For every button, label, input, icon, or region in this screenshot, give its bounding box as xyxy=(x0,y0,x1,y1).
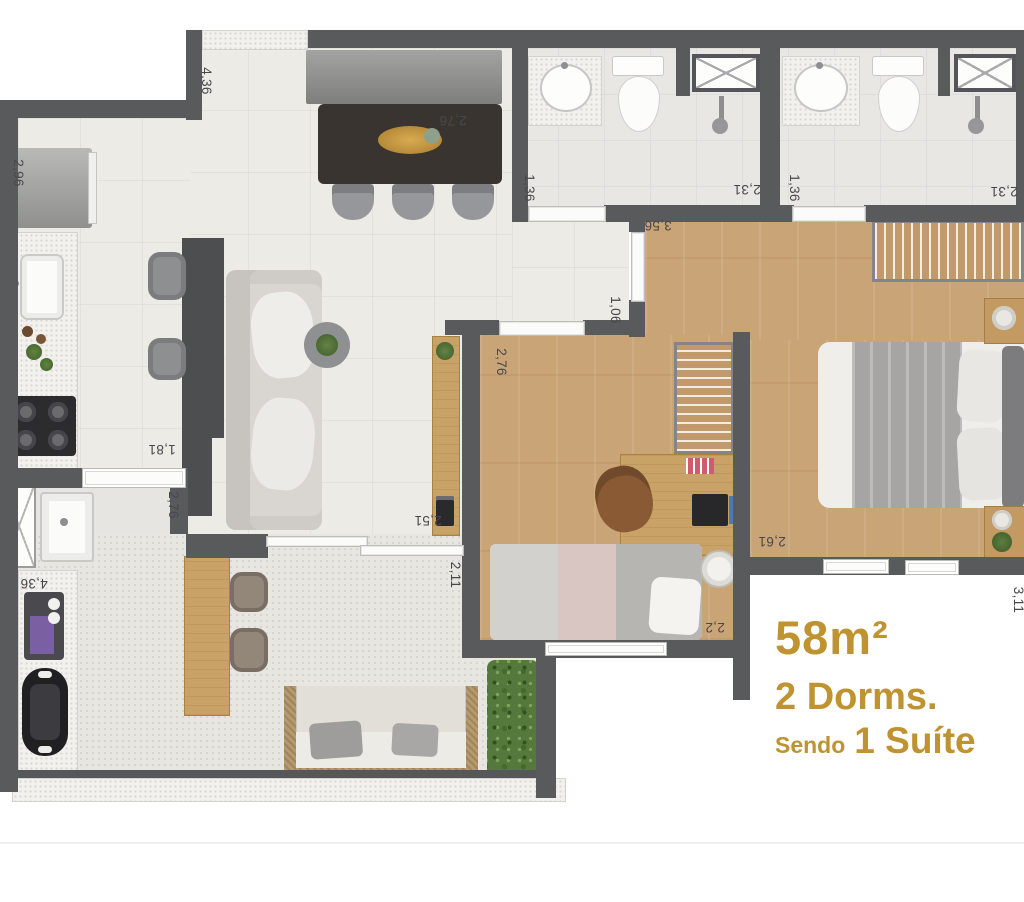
dimension-label: 4,36 xyxy=(11,575,57,593)
suite-prefix-label: Sendo xyxy=(775,734,845,757)
kitchen-pass-through-window xyxy=(82,468,186,488)
bed-pillow xyxy=(956,427,1008,501)
dimension-label: 2,76 xyxy=(151,494,197,516)
dimension-label: 1,81 xyxy=(139,441,185,459)
herb-plant-icon xyxy=(26,344,42,360)
hedge-plant xyxy=(487,660,539,788)
grill-handle-icon xyxy=(38,746,52,753)
toilet-tank xyxy=(872,56,924,76)
sideboard xyxy=(306,50,502,104)
wall xyxy=(864,205,1024,222)
floor-plan: 4,36 2,76 2,96 1,36 2,31 1,36 2,31 3,56 … xyxy=(0,0,1024,902)
bar-stool xyxy=(230,628,268,672)
bar-stool xyxy=(148,252,186,300)
wall xyxy=(604,205,760,222)
shower-box xyxy=(954,54,1016,92)
wicker-arm xyxy=(466,686,478,780)
burner-icon xyxy=(48,430,68,450)
suite-wardrobe xyxy=(872,220,1024,282)
plate-icon xyxy=(48,612,60,624)
decor-plate-icon xyxy=(992,306,1016,330)
toilet-tank xyxy=(612,56,664,76)
faucet-icon xyxy=(561,62,568,69)
dimension-label: 2,96 xyxy=(0,162,42,184)
shower-head-icon xyxy=(712,118,728,134)
dimension-label: 2,61 xyxy=(749,533,795,551)
suite-window xyxy=(905,560,959,575)
dimension-label: 1,06 xyxy=(593,299,639,321)
wicker-arm xyxy=(284,686,296,780)
outdoor-sofa xyxy=(284,686,478,780)
pot-icon xyxy=(22,326,33,337)
shower-box xyxy=(692,54,760,92)
grill-handle-icon xyxy=(38,671,52,678)
wall xyxy=(186,534,268,558)
faucet-icon xyxy=(60,518,68,526)
dimension-label: 2,2 xyxy=(695,619,735,637)
sofa-pillow xyxy=(309,720,363,760)
suite-window xyxy=(823,559,889,574)
wall xyxy=(938,48,950,96)
area-label: 58m² xyxy=(775,614,889,661)
dimension-label: 2,76 xyxy=(430,112,476,130)
herb-plant-icon xyxy=(40,358,53,371)
fridge-handle xyxy=(88,152,97,224)
dimension-label: 2,76 xyxy=(479,351,525,373)
side-table-plant-icon xyxy=(316,334,338,356)
bar-counter xyxy=(184,556,230,716)
dimension-label: 2,31 xyxy=(981,183,1024,201)
bar-stool xyxy=(148,338,186,380)
balcony-railing xyxy=(18,770,556,778)
dimension-label: 3,56 xyxy=(635,217,681,235)
cooktop xyxy=(10,396,76,456)
platter-greens-icon xyxy=(424,128,440,144)
burner-icon xyxy=(16,430,36,450)
dimension-label: 1,36 xyxy=(507,177,553,199)
burner-icon xyxy=(48,402,68,422)
dimension-label: 2,11 xyxy=(433,564,479,586)
bathroom-sink xyxy=(540,64,592,112)
shower-head-icon xyxy=(968,118,984,134)
bar-stool xyxy=(230,572,268,612)
bathroom-1-door xyxy=(528,206,606,222)
sofa-pillow xyxy=(391,723,439,757)
headboard-cushions xyxy=(1002,346,1024,508)
laundry-sink xyxy=(40,492,94,562)
decor-plate-icon xyxy=(992,510,1012,530)
balcony-sliding-door xyxy=(360,545,464,556)
dorms-label: 2 Dorms. xyxy=(775,678,938,716)
bedroom2-wardrobe xyxy=(674,342,734,454)
wall xyxy=(676,48,690,96)
plate-icon xyxy=(48,598,60,610)
dimension-label: 2,31 xyxy=(724,181,770,199)
grill-grate xyxy=(30,684,60,740)
pot-icon xyxy=(36,334,46,344)
nightstand-plant-icon xyxy=(992,532,1012,552)
bed-pillow xyxy=(648,576,702,635)
wall xyxy=(462,320,480,650)
dimension-label: 4,36 xyxy=(184,70,230,92)
wall xyxy=(536,652,556,798)
suite-door xyxy=(631,232,645,302)
bed-duvet xyxy=(852,342,962,508)
entry-door-threshold xyxy=(202,30,308,50)
wall xyxy=(0,100,18,792)
dimension-label: 3,11 xyxy=(996,589,1024,611)
bed-pillow xyxy=(956,349,1008,423)
single-bed-blanket xyxy=(490,544,558,640)
dimension-label: 1,36 xyxy=(772,177,818,199)
balcony-sliding-door xyxy=(266,536,368,547)
single-bed-blanket xyxy=(558,544,616,640)
page-divider-line xyxy=(0,842,1024,844)
bathroom-sink xyxy=(794,64,848,112)
dimension-label: 2,51 xyxy=(405,512,451,530)
bathroom-2-door xyxy=(792,206,866,222)
bedroom-2-window xyxy=(545,642,667,656)
wall xyxy=(306,30,1024,48)
wall xyxy=(18,468,82,488)
laptop-icon xyxy=(692,494,728,526)
kitchen-sink xyxy=(20,254,64,320)
books-icon xyxy=(686,458,714,474)
wall xyxy=(0,100,190,118)
burner-icon xyxy=(16,402,36,422)
suite-label: Sendo 1 Suíte xyxy=(775,722,976,759)
wall xyxy=(512,205,528,222)
bedroom-2-door xyxy=(499,321,585,336)
sideboard-plant-icon xyxy=(436,342,454,360)
balcony-ledge xyxy=(12,778,566,802)
faucet-icon xyxy=(816,62,823,69)
kitchen-island xyxy=(182,238,224,438)
suite-name-label: 1 Suíte xyxy=(854,722,975,759)
